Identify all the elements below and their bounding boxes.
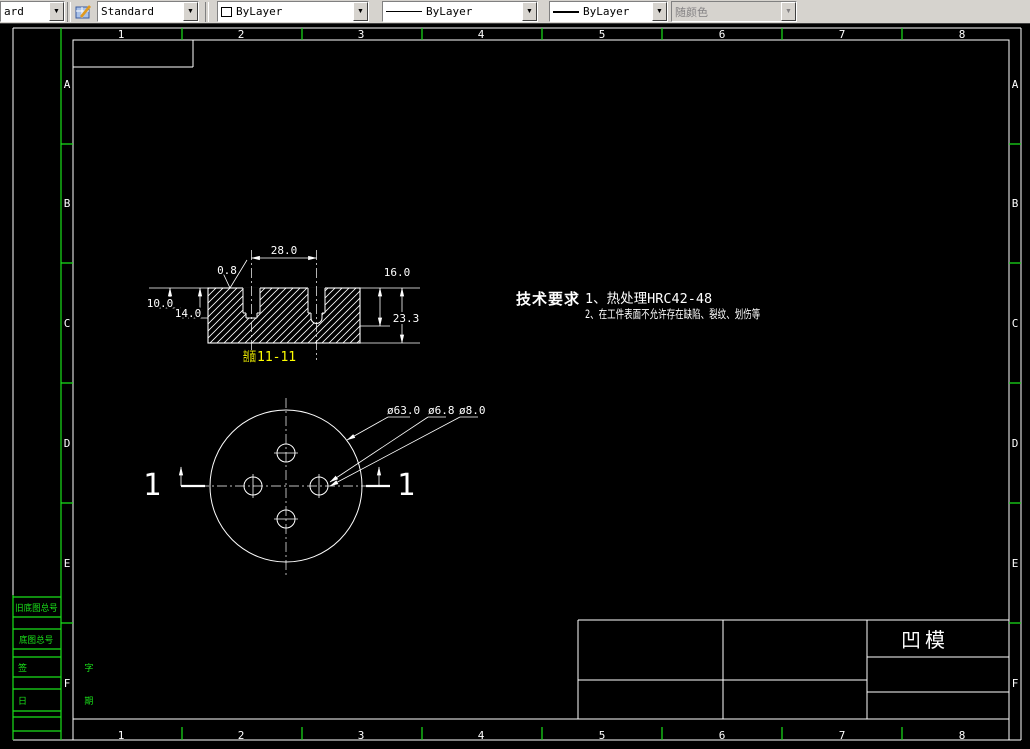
- svg-text:8: 8: [959, 28, 966, 41]
- zone-ticks: [61, 28, 1021, 740]
- section-marker-right: 1: [397, 468, 415, 503]
- margin-row-date: 日 期: [18, 696, 119, 707]
- margin-row-signature: 签 字: [18, 662, 119, 674]
- dim-style-combo[interactable]: ard ▼: [0, 1, 65, 22]
- dia-small: ø6.8: [428, 404, 455, 417]
- svg-text:6: 6: [719, 28, 726, 41]
- dim-style-value: ard: [4, 5, 24, 18]
- text-style-combo[interactable]: Standard ▼: [97, 1, 199, 22]
- svg-text:7: 7: [839, 28, 846, 41]
- margin-row-base-no: 底图总号: [19, 634, 53, 646]
- svg-text:F: F: [64, 677, 71, 690]
- toolbar-separator: [205, 2, 209, 22]
- linetype-sample: [386, 11, 422, 12]
- svg-text:C: C: [64, 317, 71, 330]
- paper-border: [13, 28, 1021, 740]
- margin-row-old-base-no: 旧底图总号: [15, 602, 58, 614]
- svg-text:B: B: [1012, 197, 1019, 210]
- chevron-down-icon[interactable]: ▼: [652, 2, 667, 21]
- svg-text:4: 4: [478, 28, 485, 41]
- dim-roughness: 0.8: [217, 264, 237, 277]
- text-style-icon[interactable]: [73, 1, 95, 22]
- toolbar: ard ▼ Standard ▼ ByLayer ▼ ByLayer ▼ ByL…: [0, 0, 1030, 24]
- svg-text:D: D: [64, 437, 71, 450]
- text-style-glyph: [75, 4, 93, 20]
- svg-text:8: 8: [959, 729, 966, 742]
- svg-text:3: 3: [358, 28, 365, 41]
- svg-text:F: F: [1012, 677, 1019, 690]
- plot-style-value: 随颜色: [675, 4, 708, 20]
- chevron-down-icon[interactable]: ▼: [353, 2, 368, 21]
- linetype-combo[interactable]: ByLayer ▼: [382, 1, 538, 22]
- svg-text:1: 1: [118, 729, 125, 742]
- chevron-down-icon[interactable]: ▼: [49, 2, 64, 21]
- svg-text:C: C: [1012, 317, 1019, 330]
- svg-text:7: 7: [839, 729, 846, 742]
- section-label: 11-11: [257, 350, 296, 365]
- dim-28: 28.0: [271, 244, 298, 257]
- text-style-value: Standard: [101, 5, 154, 18]
- tech-req-line2: 2、在工件表面不允许存在缺陷、裂纹、划伤等: [585, 307, 760, 322]
- svg-text:B: B: [64, 197, 71, 210]
- section-view: 28.0 0.8 16.0 23.3 10.0 14.0 剖面 11-11: [147, 244, 420, 365]
- dim-23-3: 23.3: [393, 312, 420, 325]
- svg-text:3: 3: [358, 729, 365, 742]
- section-marker-left: 1: [143, 468, 161, 503]
- dia-large: ø8.0: [459, 404, 486, 417]
- section-label-prefix: 剖面: [243, 348, 256, 364]
- linetype-value: ByLayer: [426, 5, 472, 18]
- tech-requirements: 技术要求 1、热处理HRC42-48 2、在工件表面不允许存在缺陷、裂纹、划伤等: [516, 290, 760, 321]
- chevron-down-icon[interactable]: ▼: [183, 2, 198, 21]
- part-name: 凹模: [901, 628, 949, 652]
- svg-text:E: E: [64, 557, 71, 570]
- svg-text:4: 4: [478, 729, 485, 742]
- lineweight-value: ByLayer: [583, 5, 629, 18]
- lineweight-sample: [553, 11, 579, 13]
- chevron-down-icon[interactable]: ▼: [522, 2, 537, 21]
- svg-text:6: 6: [719, 729, 726, 742]
- svg-text:1: 1: [118, 28, 125, 41]
- chevron-down-icon: ▼: [781, 2, 796, 21]
- color-swatch: [221, 7, 232, 17]
- svg-text:2: 2: [238, 729, 245, 742]
- dim-10: 10.0: [147, 297, 174, 310]
- toolbar-separator: [67, 2, 71, 22]
- svg-text:E: E: [1012, 557, 1019, 570]
- dim-16: 16.0: [384, 266, 411, 279]
- title-block: 凹模: [578, 620, 1009, 719]
- tech-req-title: 技术要求: [516, 290, 580, 308]
- svg-text:A: A: [64, 78, 71, 91]
- binding-margin-block[interactable]: 旧底图总号 底图总号 签 字 日 期: [13, 28, 119, 740]
- color-combo[interactable]: ByLayer ▼: [217, 1, 369, 22]
- svg-text:D: D: [1012, 437, 1019, 450]
- lineweight-combo[interactable]: ByLayer ▼: [549, 1, 668, 22]
- color-value: ByLayer: [236, 5, 282, 18]
- svg-text:5: 5: [599, 729, 606, 742]
- dim-14: 14.0: [175, 307, 202, 320]
- svg-text:A: A: [1012, 78, 1019, 91]
- plan-view: 1 1 ø63.0 ø6.8 ø8.0: [143, 398, 486, 578]
- plot-style-combo: 随颜色 ▼: [671, 1, 797, 22]
- zone-labels: 1 2 3 4 5 6 7 8 1 2 3 4 5 6 7 8 A B C D …: [64, 28, 1019, 742]
- svg-text:2: 2: [238, 28, 245, 41]
- svg-text:5: 5: [599, 28, 606, 41]
- tech-req-line1: 1、热处理HRC42-48: [585, 291, 712, 307]
- drawing-canvas[interactable]: 旧底图总号 底图总号 签 字 日 期 1 2 3 4 5 6 7 8 1 2 3…: [0, 0, 1030, 744]
- dia-outer: ø63.0: [387, 404, 420, 417]
- cad-drawing: 旧底图总号 底图总号 签 字 日 期 1 2 3 4 5 6 7 8 1 2 3…: [0, 0, 1030, 744]
